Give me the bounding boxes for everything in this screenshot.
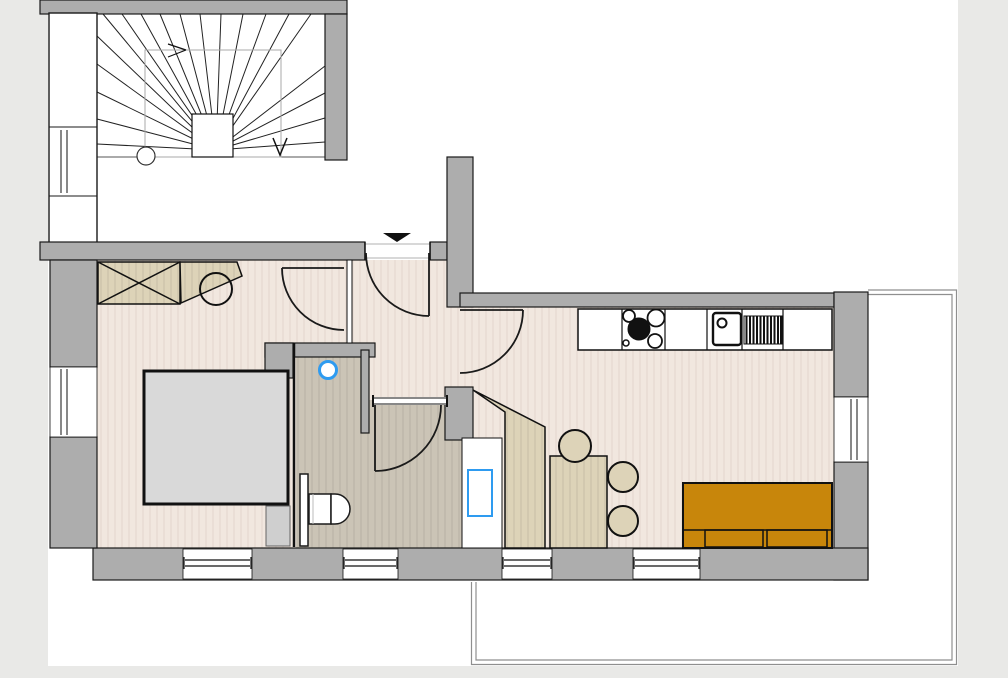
dining-table [550,456,607,548]
dining-chair [608,462,638,492]
wall-living-chunk [445,387,473,440]
stair-landing [192,114,233,157]
kitchen-counter [578,309,832,350]
kitchen [578,309,832,350]
entrance-gap [365,242,430,260]
nightstand [266,506,290,546]
radiator-strip [300,474,308,546]
dining-chair [608,506,638,536]
dining-chair [559,430,591,462]
wall-stair-top [40,0,347,14]
stair-newel-circle [137,147,155,165]
drain-circle-icon [320,362,337,379]
sink-icon [713,313,741,345]
wall-bathroom-stub [361,350,369,433]
toilet-tank [309,494,331,524]
wall-top-right-stub [430,242,447,260]
double-bed [144,371,288,504]
wall-stair-right [325,14,347,160]
shower-tray [468,470,492,516]
drainer-icon [744,316,782,344]
wall-kitchen-top [460,293,834,307]
partition-bedroom-hall [347,260,352,343]
bedroom-window-gap [50,367,97,437]
wall-stair-left [49,13,97,243]
wall-left-lower [50,437,97,548]
wall-left-upper [50,260,97,367]
wall-top-left [40,242,365,260]
floor-plan-stage [0,0,1008,678]
wall-spur [447,157,473,307]
wall-right-upper [834,292,868,397]
floor-plan-svg [0,0,1008,678]
sofa [683,483,832,548]
